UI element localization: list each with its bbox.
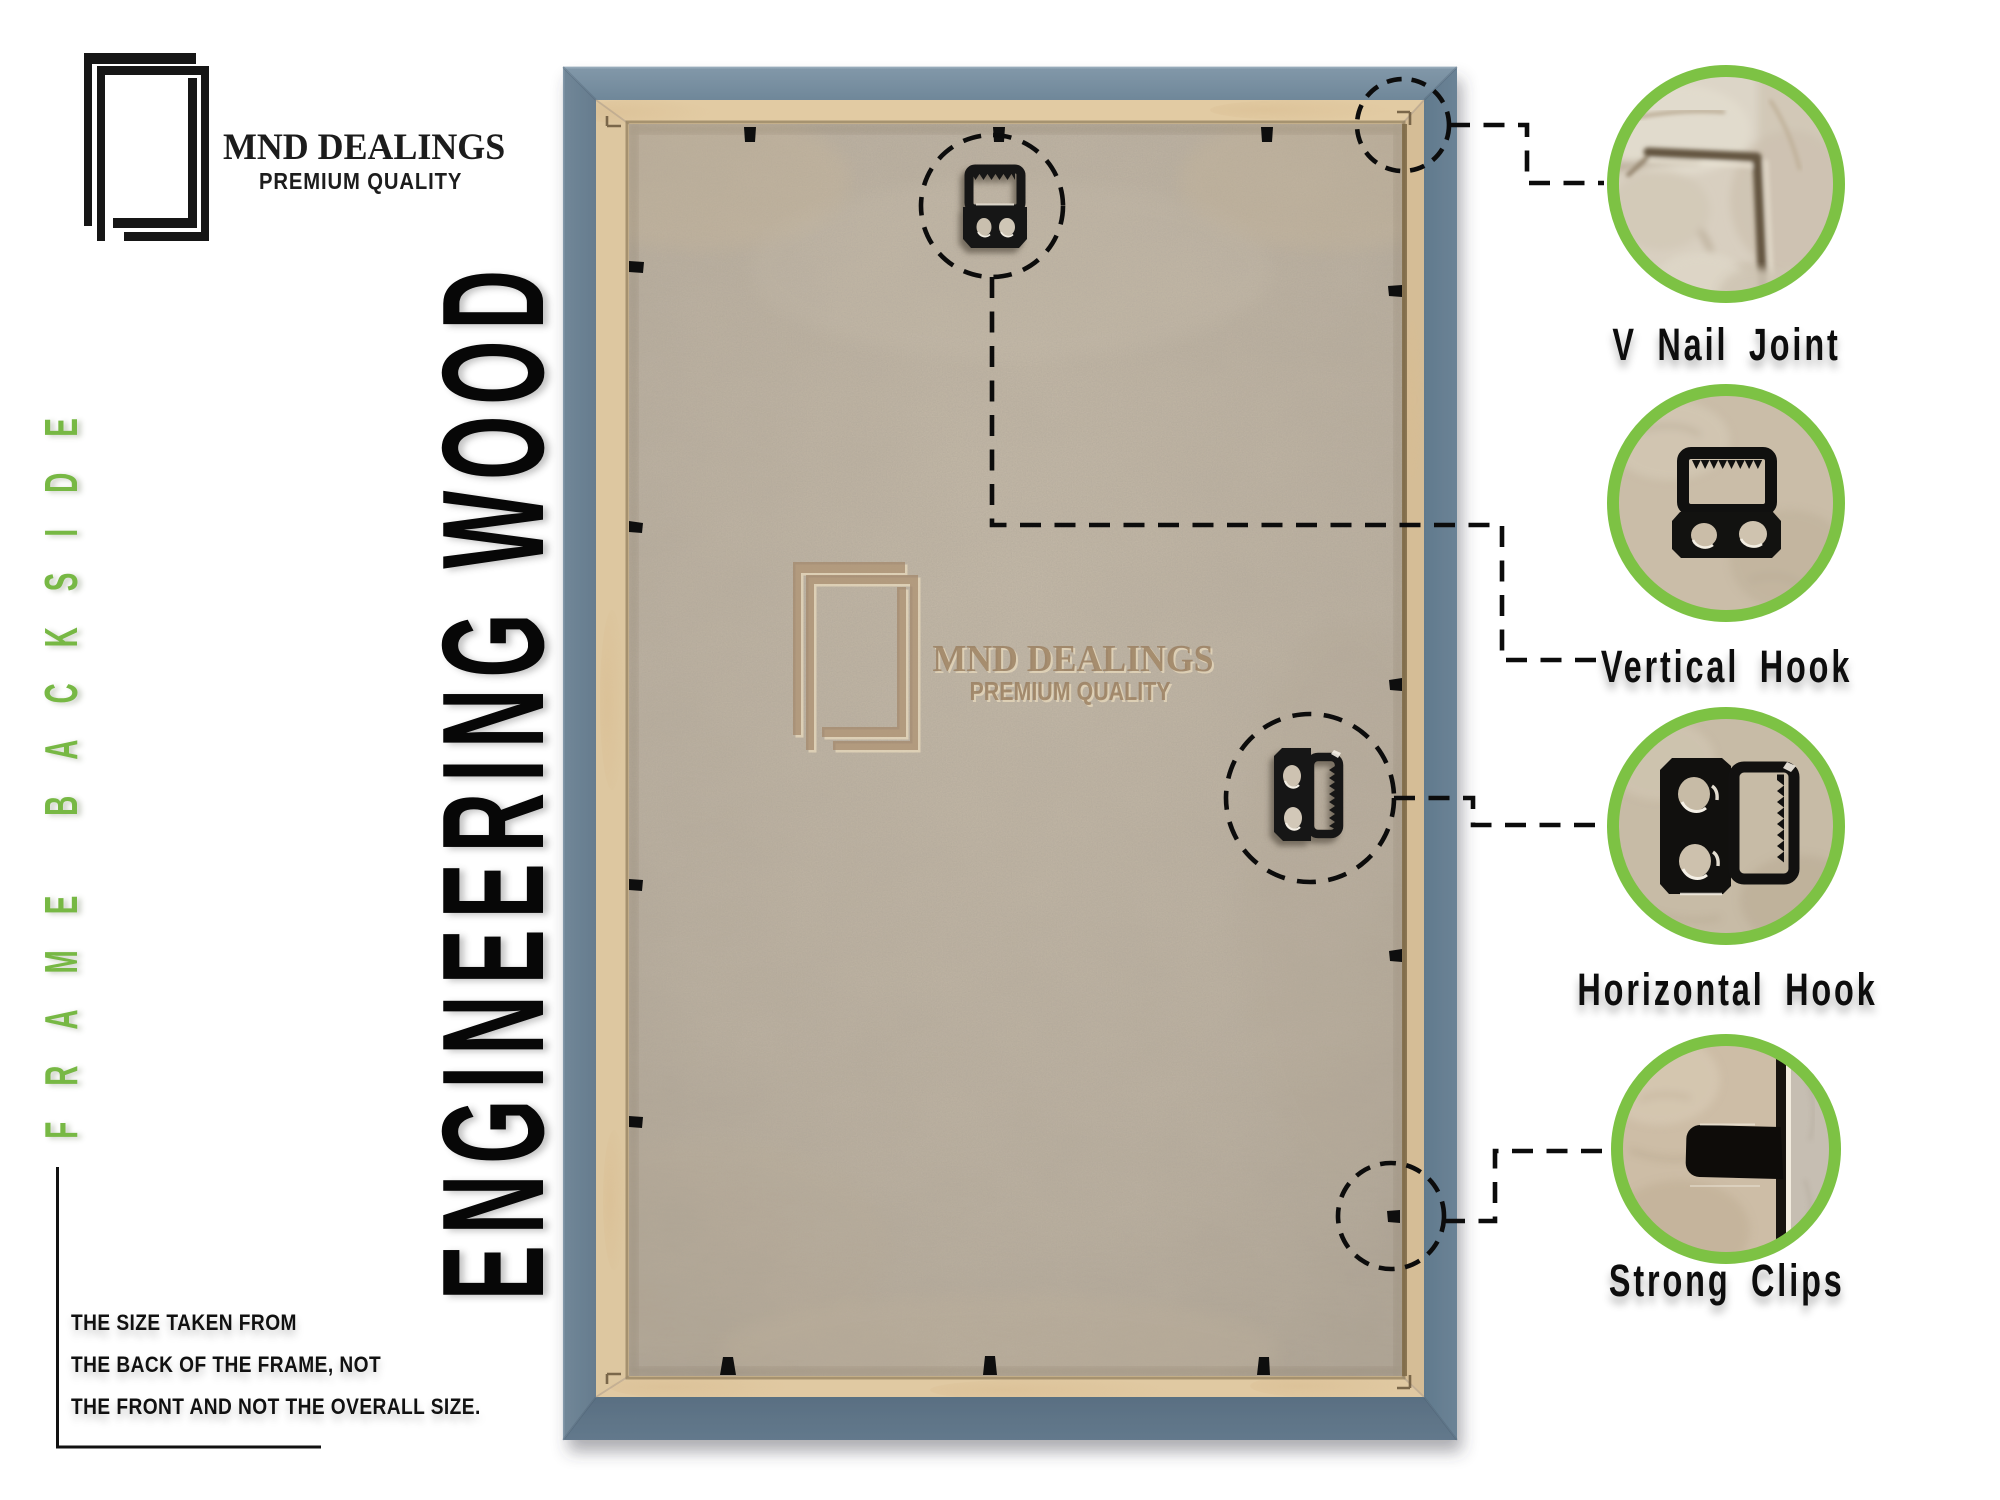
svg-text:MND DEALINGS: MND DEALINGS — [933, 638, 1214, 680]
svg-text:PREMIUM QUALITY: PREMIUM QUALITY — [970, 676, 1171, 706]
